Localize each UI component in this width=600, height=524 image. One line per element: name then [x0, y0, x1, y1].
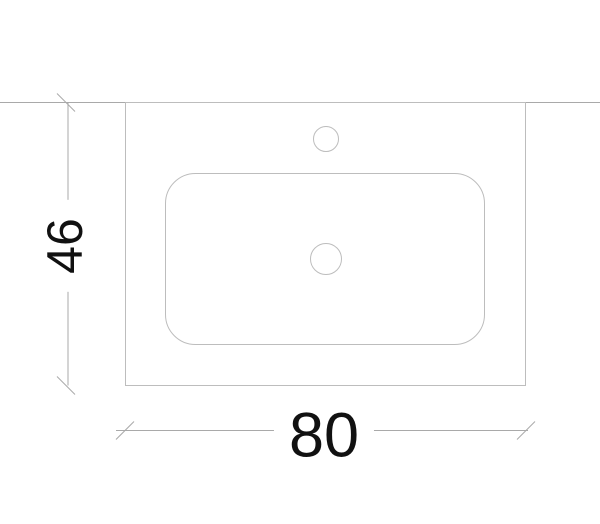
dimension-tick-height-bottom [57, 377, 75, 395]
drawing-canvas: 46 80 [0, 0, 600, 524]
height-dimension-label: 46 [40, 200, 90, 292]
faucet-hole [314, 127, 339, 152]
width-dimension-label: 80 [274, 405, 374, 468]
basin-outline [166, 174, 485, 345]
drain-hole [311, 244, 342, 275]
